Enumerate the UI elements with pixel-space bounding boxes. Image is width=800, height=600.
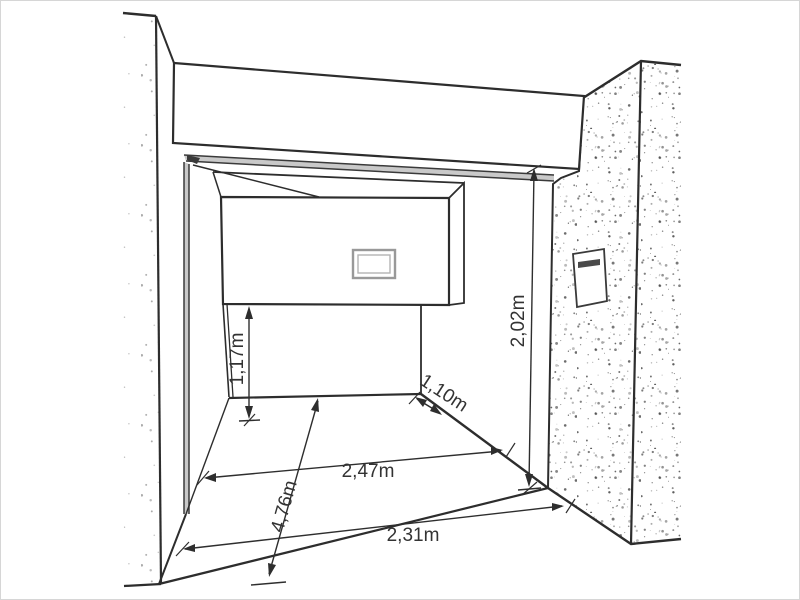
arrowhead-right (552, 503, 564, 511)
dimension-label: 2,47m (342, 461, 395, 482)
right-slash (506, 443, 515, 457)
floor (159, 394, 548, 584)
door-window-inner-frame (358, 255, 390, 273)
dimension-label: 1,17m (227, 333, 248, 386)
ceiling-left-fold-line (193, 165, 319, 197)
arrowhead-down (525, 474, 533, 487)
drawing-page: 1,17m 2,02m 1,10m 2,47m 4,76m (0, 0, 800, 600)
dimension-line (185, 506, 562, 549)
door-panel-side-face (449, 183, 464, 305)
arrowhead-down (268, 563, 276, 577)
wall-box-body (573, 249, 607, 307)
garage-door-panel (221, 183, 464, 305)
dimension-1-17m: 1,17m (227, 306, 260, 426)
lintel-face (173, 63, 584, 169)
door-window (353, 250, 395, 278)
dimension-line (529, 171, 534, 484)
floor-front-edge (159, 488, 548, 584)
floor-back-edge (229, 394, 421, 398)
garage-dimension-drawing: 1,17m 2,02m 1,10m 2,47m 4,76m (1, 1, 800, 600)
ceiling-left-connector (213, 172, 221, 197)
left-reveal-top-edge (156, 16, 174, 63)
dimension-label: 2,31m (387, 525, 440, 546)
dimension-label: 2,02m (508, 295, 529, 348)
dimension-4-76m: 4,76m (251, 398, 319, 585)
dimension-label: 4,76m (267, 478, 302, 535)
dimension-2-31m: 2,31m (176, 499, 575, 556)
arrowhead-up (245, 306, 253, 319)
end-tick (251, 582, 286, 585)
wall-mounted-box (573, 249, 607, 307)
lintel-beam (173, 63, 584, 169)
arrowhead-up (311, 398, 319, 412)
left-wall-face (123, 13, 161, 586)
dimension-2-47m: 2,47m (197, 443, 515, 485)
door-panel-face (221, 197, 449, 305)
back-wall-lines (223, 304, 421, 397)
door-track (184, 162, 189, 514)
arrowhead-left (183, 544, 195, 552)
floor-left-edge (186, 398, 229, 514)
